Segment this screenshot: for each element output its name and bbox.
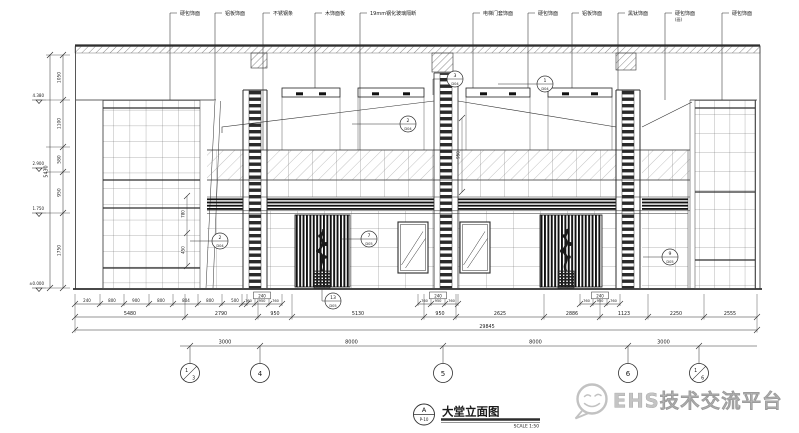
callout-label: 硬包饰面 bbox=[732, 10, 752, 17]
cove-slope-lines bbox=[222, 101, 692, 133]
level-label: 4.380 bbox=[33, 93, 45, 98]
title-tag-sheet: P-10 bbox=[420, 417, 429, 422]
callout-label: 铝板饰面 bbox=[582, 10, 602, 17]
title-block: A P-10 大堂立面图 SCALE 1:50 bbox=[414, 404, 541, 430]
detail-tag-sheet: D04 bbox=[404, 127, 412, 131]
callout-label: 木饰面板 bbox=[325, 10, 345, 17]
callout-label: 黑钛饰面 bbox=[628, 10, 648, 17]
callout-label: 硬包饰面 bbox=[180, 10, 200, 17]
drawing-title: 大堂立面图 bbox=[442, 405, 500, 419]
dim-rowA: 900 bbox=[132, 298, 140, 303]
axis-dim: 8000 bbox=[345, 340, 358, 346]
detail-tag-sheet: D04 bbox=[541, 87, 549, 91]
ceiling-band bbox=[75, 46, 760, 73]
grid-bubble: 4 bbox=[251, 364, 270, 383]
dim-rowA: 800 bbox=[206, 298, 214, 303]
decorative-column-1 bbox=[243, 90, 267, 288]
title-tag-letter: A bbox=[422, 406, 427, 414]
detail-tag-number: 9 bbox=[669, 251, 672, 257]
detail-tag-number: 2 bbox=[407, 118, 410, 124]
grid-bubble-label: 3 bbox=[192, 376, 195, 382]
elevation-drawing-canvas: 240 760 950 760 bbox=[0, 0, 799, 433]
bottom-dimensions: 240 800 900 800 804 800 500 5480 2790 95… bbox=[72, 292, 760, 333]
dim-rowA: 240 bbox=[83, 298, 91, 303]
axis-dim: 3000 bbox=[219, 340, 232, 346]
callout-label: 电梯门套饰面 bbox=[483, 10, 513, 17]
dim-rowB: 2625 bbox=[494, 311, 506, 317]
detail-tag-sheet: D05 bbox=[365, 242, 372, 246]
watermark: EHS技术交流平台 bbox=[576, 385, 783, 419]
watermark-text: EHS技术交流平台 bbox=[613, 390, 783, 413]
level-label: 2.900 bbox=[33, 161, 45, 166]
dim-rowA: 800 bbox=[108, 298, 116, 303]
grid-bubble: 6 bbox=[619, 364, 638, 383]
detail-tag-sheet: D05 bbox=[666, 260, 673, 264]
detail-tag-sheet: D04 bbox=[216, 244, 224, 248]
dim-rowB: 2250 bbox=[670, 311, 682, 317]
internal-dim: 450 bbox=[181, 246, 186, 254]
grid-bubble-label: 1 bbox=[694, 368, 697, 374]
detail-tag: 13 D05 bbox=[322, 289, 341, 309]
grid-bubble-label: 4 bbox=[258, 370, 263, 378]
left-dim-segment: 1100 bbox=[57, 118, 63, 129]
detail-tag-number: 1 bbox=[544, 78, 547, 84]
dim-cluster bbox=[415, 292, 461, 307]
axis-dim: 8000 bbox=[529, 340, 542, 346]
internal-dim: 950 bbox=[456, 151, 461, 159]
left-dim-overall: 5430 bbox=[44, 165, 50, 177]
detail-tag: 2 D04 bbox=[352, 116, 416, 132]
decorative-column-2 bbox=[616, 90, 640, 288]
left-dim-segment: 950 bbox=[57, 188, 63, 197]
detail-tag-number: 7 bbox=[368, 233, 371, 239]
grid-bubble: 1 6 bbox=[690, 364, 709, 383]
detail-tag-number: 2 bbox=[219, 235, 222, 241]
window bbox=[398, 222, 428, 273]
ceiling-downstand bbox=[616, 53, 636, 70]
callout-label: 硬包饰面 bbox=[675, 10, 695, 17]
detail-tag-sheet: D05 bbox=[329, 304, 336, 308]
detail-tag-number: 13 bbox=[330, 295, 336, 301]
elevation-drawing-page: 240 760 950 760 bbox=[0, 0, 799, 433]
grid-bubble-label: 6 bbox=[701, 376, 704, 382]
dim-rowB: 2555 bbox=[724, 311, 736, 317]
drawing-scale: SCALE 1:50 bbox=[514, 424, 540, 430]
grid-bubble-label: 6 bbox=[626, 370, 631, 378]
window bbox=[460, 222, 490, 273]
left-dim-segment: 1750 bbox=[57, 245, 63, 256]
dim-rowB: 5480 bbox=[124, 311, 136, 317]
dim-rowB: 950 bbox=[270, 311, 279, 317]
dim-rowB: 2790 bbox=[215, 311, 227, 317]
ceiling-downstand bbox=[432, 53, 453, 72]
dim-rowA: 800 bbox=[157, 298, 165, 303]
callout-label: 19mm钢化玻璃隔断 bbox=[370, 10, 416, 17]
level-label: ±0.000 bbox=[29, 281, 44, 286]
left-tile-wall bbox=[76, 100, 221, 289]
dim-rowB: 950 bbox=[435, 311, 444, 317]
dim-rowA: 804 bbox=[182, 298, 190, 303]
left-dim-segment: 1050 bbox=[57, 72, 63, 83]
center-pilaster bbox=[434, 73, 458, 288]
axis-grid: 3000 8000 8000 3000 1 3 4 5 6 1 6 bbox=[180, 340, 757, 383]
right-tile-wall bbox=[688, 100, 757, 289]
callout-label: 不锈钢条 bbox=[273, 10, 293, 17]
left-dimension-stack: 1050 1100 580 950 1750 5430 bbox=[44, 52, 71, 291]
callout-label: 硬包饰面 bbox=[538, 10, 558, 17]
grid-bubble-label: 1 bbox=[185, 368, 188, 374]
detail-tag-number: 3 bbox=[454, 73, 457, 79]
axis-dim: 3000 bbox=[657, 340, 670, 346]
level-label: 1.750 bbox=[33, 206, 45, 211]
grid-bubble: 1 3 bbox=[181, 364, 200, 383]
detail-tag-sheet: D04 bbox=[451, 82, 459, 86]
grid-bubble-label: 5 bbox=[441, 370, 445, 378]
callout-label-sub: (画) bbox=[675, 17, 683, 22]
left-dim-segment: 580 bbox=[57, 155, 63, 164]
wechat-bubble-icon bbox=[576, 385, 607, 419]
ceiling-downstand bbox=[251, 53, 267, 68]
level-markers: 4.380 2.900 1.750 ±0.000 bbox=[29, 93, 46, 291]
grid-bubble: 5 bbox=[434, 364, 453, 383]
dim-rowB: 5130 bbox=[352, 311, 364, 317]
dim-rowB: 1123 bbox=[618, 311, 630, 317]
dim-overall: 29845 bbox=[479, 324, 494, 330]
dim-rowB: 2886 bbox=[566, 311, 578, 317]
dim-rowA: 500 bbox=[231, 298, 239, 303]
callout-label: 铝板饰面 bbox=[225, 10, 245, 17]
internal-dim: 780 bbox=[181, 210, 186, 218]
